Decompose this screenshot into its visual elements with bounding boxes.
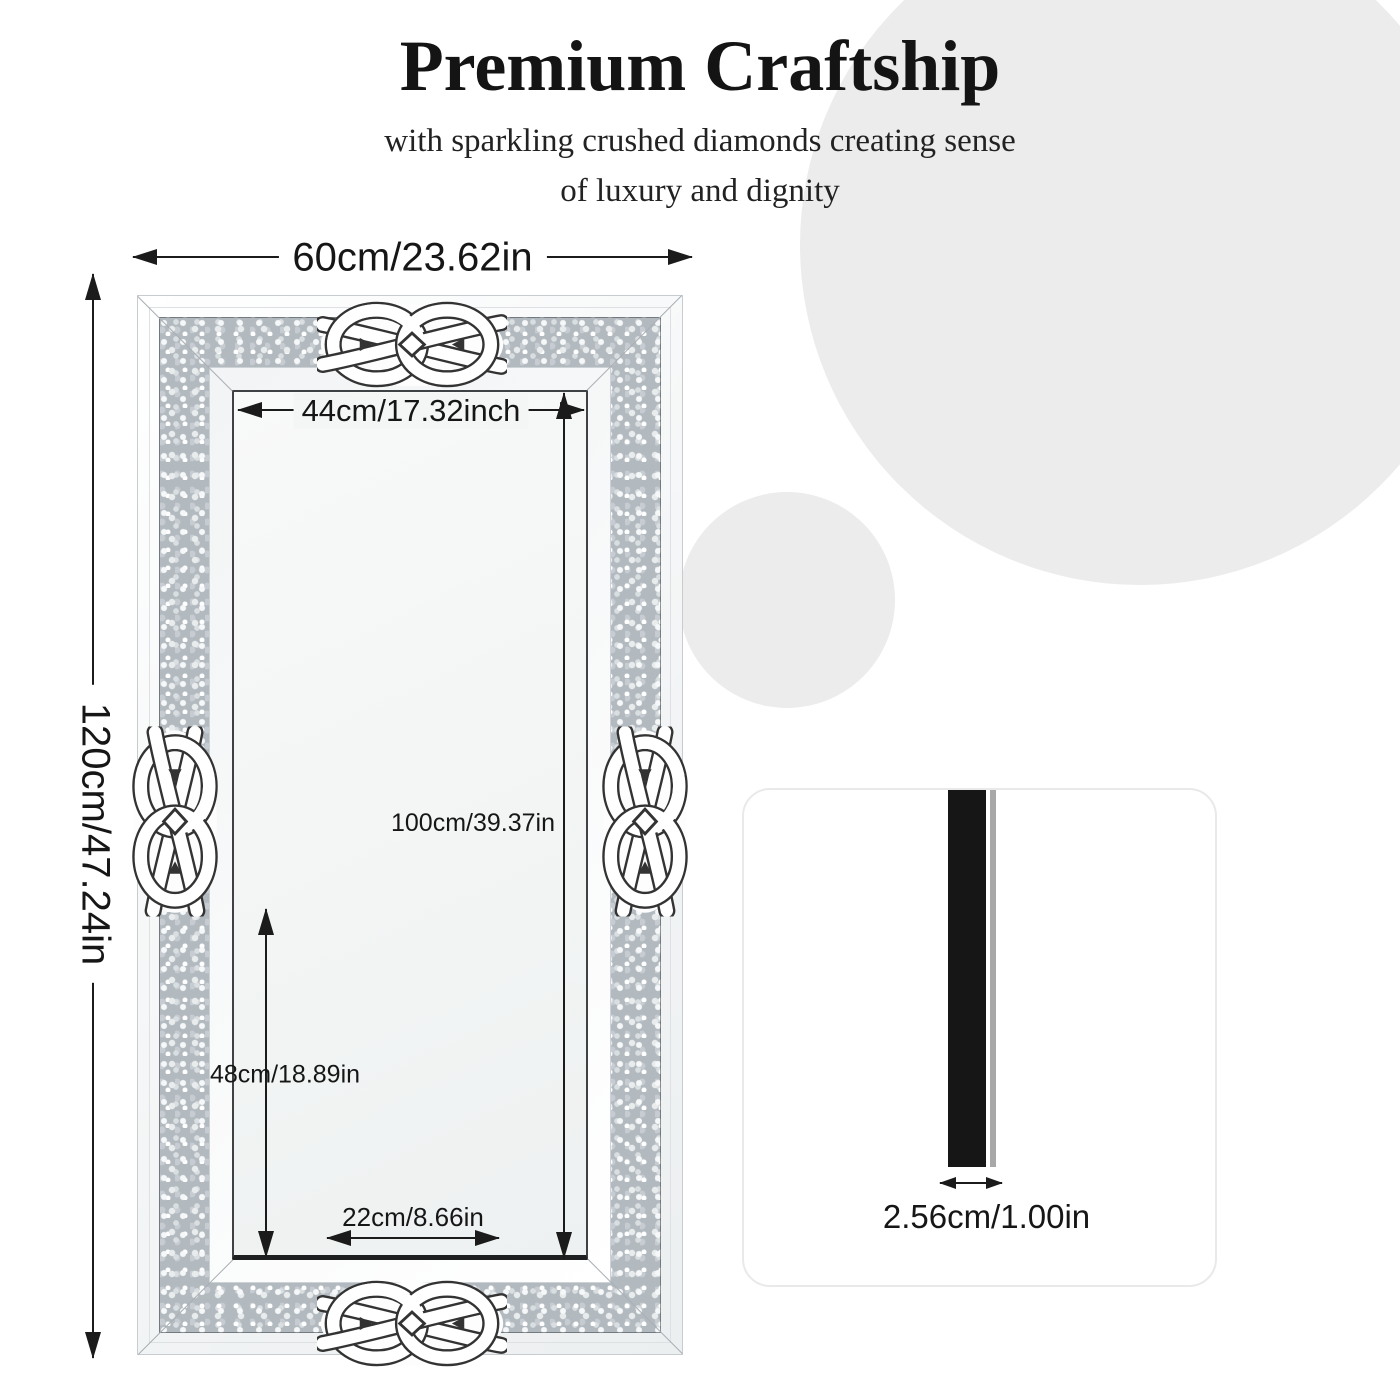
background-circle-medium — [679, 492, 895, 708]
arrow-left-icon — [939, 1177, 956, 1189]
arrow-right-icon — [986, 1177, 1003, 1189]
celtic-knot-right-icon — [593, 727, 698, 917]
subtitle-line-1: with sparkling crushed diamonds creating… — [0, 116, 1400, 166]
arrow-down-icon — [258, 1231, 274, 1258]
header: Premium Craftship with sparkling crushed… — [0, 28, 1400, 216]
outer-width-label: 60cm/23.62in — [278, 236, 546, 281]
lower-height-label: 48cm/18.89in — [210, 1061, 360, 1090]
inner-height-label: 100cm/39.37in — [391, 809, 555, 838]
arrow-up-icon — [85, 273, 101, 300]
dimension-lower-height: 48cm/18.89in — [265, 909, 267, 1257]
outer-height-label: 120cm/47.24in — [73, 685, 118, 983]
arrow-left-icon — [237, 402, 262, 418]
arrow-right-icon — [668, 249, 693, 265]
arrow-up-icon — [556, 392, 572, 419]
page-title: Premium Craftship — [0, 28, 1400, 104]
dimension-bottom-width: 22cm/8.66in — [327, 1237, 499, 1239]
subtitle-line-2: of luxury and dignity — [0, 166, 1400, 216]
dimension-thickness — [940, 1182, 1002, 1184]
arrow-down-icon — [556, 1232, 572, 1259]
arrow-up-icon — [258, 908, 274, 935]
dimension-outer-width: 60cm/23.62in — [133, 256, 692, 258]
product-infographic: Premium Craftship with sparkling crushed… — [0, 0, 1400, 1400]
side-view-card: 2.56cm/1.00in — [742, 788, 1217, 1287]
dimension-inner-height: 100cm/39.37in — [563, 393, 565, 1258]
dimension-outer-height: 120cm/47.24in — [92, 274, 94, 1358]
mirror-side-profile-bar — [948, 790, 986, 1167]
celtic-knot-bottom-icon — [317, 1271, 507, 1376]
celtic-knot-left-icon — [123, 727, 228, 917]
inner-width-label: 44cm/17.32inch — [294, 393, 529, 429]
arrow-left-icon — [132, 249, 157, 265]
celtic-knot-top-icon — [317, 292, 507, 397]
mirror-backing-strip — [990, 790, 996, 1167]
page-subtitle: with sparkling crushed diamonds creating… — [0, 116, 1400, 216]
arrow-down-icon — [85, 1332, 101, 1359]
dimension-inner-width: 44cm/17.32inch — [238, 409, 584, 411]
bottom-width-label: 22cm/8.66in — [342, 1202, 484, 1233]
thickness-label: 2.56cm/1.00in — [744, 1198, 1215, 1236]
